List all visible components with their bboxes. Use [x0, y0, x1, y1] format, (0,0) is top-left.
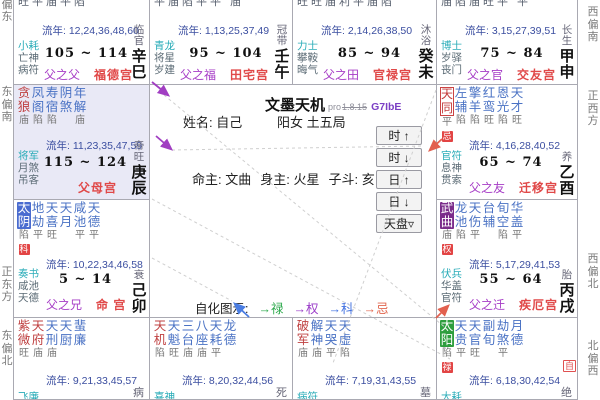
star-贪狼: 贪狼庙 [17, 87, 31, 126]
clipped-brightness-row: 旺旺庙利平庙陷 [297, 0, 395, 9]
god-病符: 病符 [297, 391, 318, 400]
star-寿宿: 寿宿陷 [45, 87, 59, 126]
stem-branch: 庚辰 [131, 164, 147, 196]
relation-label: 父之福 [180, 68, 216, 82]
star-天哭: 天哭平 [324, 320, 338, 359]
relation-label: 父之官 [467, 68, 503, 82]
self-hua-badge: 自 [563, 360, 576, 372]
day-up-button[interactable]: 日 ↑ [376, 170, 422, 189]
star-list: 天同平忌左辅陷擎羊陷红鸾旺恩光陷天才旺 [440, 87, 524, 142]
liunian-years: 流年: 10,22,34,46,58 [46, 257, 143, 272]
compass-sidebar-right: 西偏南 正西方 西偏北 北偏西 [579, 0, 600, 400]
star-八座: 八座庙 [195, 320, 209, 359]
star-天耗: 天耗平 [209, 320, 223, 359]
star-台辅: 台辅 [482, 202, 496, 255]
sihua-badge-禄: 禄 [442, 362, 453, 373]
sihua-badge-忌: 忌 [442, 131, 453, 142]
palace-name-row: 父之迁疾厄宫 [469, 296, 558, 313]
liunian-years: 流年: 12,24,36,48,60 [42, 23, 139, 38]
liunian-years: 流年: 5,17,29,41,53 [469, 257, 560, 272]
palace-cell-yin[interactable]: 紫微旺天府庙天刑庙天厨蜚廉 流年: 9,21,33,45,57 飞廉 病 [13, 318, 150, 400]
compass-label: 东偏南 [1, 86, 13, 124]
star-天虚: 天虚陷 [338, 320, 352, 359]
god-丧门: 丧门 [441, 64, 462, 76]
center-info-panel: 文墨天机pro1.8.15G7IbE 姓名: 自己 阳女 土五局 命主: 文曲身… [150, 85, 437, 318]
stem-branch: 壬午 [274, 48, 290, 80]
star-天喜: 天喜旺 [45, 202, 59, 255]
year-gods: 飞廉 [18, 391, 39, 400]
legend-item-→权: →权 [294, 302, 319, 316]
palace-name: 父母宫 [78, 181, 117, 195]
star-破军: 破军庙 [296, 320, 310, 359]
day-down-button[interactable]: 日 ↓ [376, 192, 422, 211]
star-天德: 天德平 [87, 202, 101, 255]
stem-branch: 辛巳 [131, 48, 147, 80]
palace-name: 疾厄宫 [519, 298, 558, 312]
god-晦气: 晦气 [297, 64, 318, 76]
legend-item-→科: →科 [329, 302, 354, 316]
palace-name-row: 父之父福德宫 [44, 66, 133, 83]
star-龙池: 龙池陷 [454, 202, 468, 255]
palace-name: 迁移宫 [519, 181, 558, 195]
longevity-stage: 病 [133, 384, 144, 400]
zidou: 子斗: 亥 [328, 172, 374, 187]
stem-branch-block: 衰己卯 [131, 270, 147, 314]
self-hua-legend: 自化图示:→禄→权→科→忌 [195, 298, 389, 317]
clipped-brightness-row: 旺平庙平陷 [18, 0, 88, 9]
liunian-years: 流年: 2,14,26,38,50 [321, 23, 412, 38]
star-天贵: 天贵平 [454, 320, 468, 373]
relation-label: 父之父 [44, 68, 80, 82]
star-list: 贪狼庙凤阁陷寿宿陷阴煞年解庙 [17, 87, 87, 126]
star-天魁: 天魁旺 [167, 320, 181, 359]
palace-cell-hai[interactable]: 太阳陷禄天贵平天官旺副旬劫煞平月德 流年: 6,18,30,42,54 大耗 自… [437, 318, 578, 400]
star-list: 天机陷天魁旺三台庙八座庙天耗平龙德 [153, 320, 237, 359]
palace-cell-xu-ji-e[interactable]: 武曲庙权龙池陷天伤平台辅旬空陷华盖平 流年: 5,17,29,41,53 伏兵华… [437, 200, 578, 318]
star-副旬: 副旬 [482, 320, 496, 373]
liunian-years: 流年: 11,23,35,47,59 [46, 138, 142, 153]
star-凤阁: 凤阁陷 [31, 87, 45, 126]
star-list: 武曲庙权龙池陷天伤平台辅旬空陷华盖平 [440, 202, 524, 255]
palace-cell-si-fude[interactable]: 旺平庙平陷 流年: 12,24,36,48,60 小耗亡神病符 105 ~ 11… [13, 0, 150, 85]
liunian-years: 流年: 7,19,31,43,55 [325, 373, 416, 388]
decade-range: 85 ~ 94 [313, 46, 426, 61]
liunian-years: 流年: 6,18,30,42,54 [469, 373, 560, 388]
god-大耗: 大耗 [441, 391, 462, 400]
longevity-stage: 冠带 [275, 25, 289, 47]
palace-name-row: 父之福田宅宫 [180, 66, 269, 83]
palace-cell-zi[interactable]: 破军庙解神庙天哭平天虚陷 流年: 7,19,31,43,55 病符 墓 [293, 318, 437, 400]
star-天同: 天同平忌 [440, 87, 454, 142]
star-左辅: 左辅陷 [454, 87, 468, 142]
star-地劫: 地劫平 [31, 202, 45, 255]
god-飞廉: 飞廉 [18, 391, 39, 400]
relation-label: 父之友 [469, 181, 505, 195]
star-天机: 天机陷 [153, 320, 167, 359]
decade-range: 105 ~ 114 [34, 46, 139, 61]
star-龙德: 龙德 [223, 320, 237, 359]
star-月德: 月德 [510, 320, 524, 373]
sihua-badge-权: 权 [442, 244, 453, 255]
star-旬空: 旬空陷 [496, 202, 510, 255]
palace-name: 交友宫 [517, 68, 556, 82]
palace-name-row: 父之兄命 宫 [46, 296, 126, 313]
app-code: G7IbE [371, 101, 401, 113]
decade-range: 55 ~ 64 [457, 272, 565, 287]
stem-branch: 癸未 [418, 48, 434, 80]
legend-item-→禄: →禄 [258, 302, 283, 316]
decade-range: 95 ~ 104 [170, 46, 282, 61]
palace-name-row: 父之友迁移宫 [469, 179, 558, 196]
compass-label: 西偏南 [587, 6, 599, 44]
liunian-years: 流年: 4,16,28,40,52 [469, 138, 560, 153]
star-擎羊: 擎羊陷 [468, 87, 482, 142]
stem-branch-block: 胎丙戌 [559, 270, 575, 314]
longevity-stage: 绝 [561, 384, 572, 400]
star-武曲: 武曲庙权 [440, 202, 454, 255]
god-喜神: 喜神 [154, 391, 175, 400]
star-天刑: 天刑庙 [45, 320, 59, 359]
liunian-years: 流年: 9,21,33,45,57 [46, 373, 137, 388]
star-三台: 三台庙 [181, 320, 195, 359]
star-天月: 天月 [59, 202, 73, 255]
longevity-stage: 沐浴 [419, 25, 433, 47]
star-恩光: 恩光陷 [496, 87, 510, 142]
palace-name: 命 宫 [96, 298, 126, 312]
hour-down-button[interactable]: 时 ↓ [376, 148, 422, 167]
legend-items: →禄→权→科→忌 [248, 302, 388, 316]
shen-master: 身主: 火星 [260, 172, 319, 187]
stem-branch: 乙酉 [559, 164, 575, 196]
god-吊客: 吊客 [18, 174, 39, 186]
longevity-stage: 长生 [560, 25, 574, 47]
stem-branch: 丙戌 [559, 282, 575, 314]
app-version: 1.8.15 [342, 102, 367, 112]
masters-row: 命主: 文曲身主: 火星子斗: 亥 [192, 169, 384, 188]
star-太阳: 太阳陷禄 [440, 320, 454, 373]
star-红鸾: 红鸾旺 [482, 87, 496, 142]
compass-label: 东偏北 [1, 330, 13, 368]
palace-cell-wei-guanlu[interactable]: 旺旺庙利平庙陷 流年: 2,14,26,38,50 力士攀鞍晦气 85 ~ 94… [293, 0, 437, 85]
palace-cell-you-qianyi[interactable]: 天同平忌左辅陷擎羊陷红鸾旺恩光陷天才旺 流年: 4,16,28,40,52 官符… [437, 85, 578, 200]
palace-cell-wu-tianzhai[interactable]: 平庙陷平平 庙 流年: 1,13,25,37,49 青龙将星岁建 95 ~ 10… [150, 0, 293, 85]
tianpan-select-button[interactable]: 天盘▿ [376, 214, 422, 233]
clipped-brightness-row: 庙陷庙旺平 平 [441, 0, 531, 9]
star-太阴: 太阴陷科 [17, 202, 31, 255]
star-天官: 天官旺 [468, 320, 482, 373]
liunian-years: 流年: 3,15,27,39,51 [465, 23, 556, 38]
sihua-badge-科: 科 [19, 244, 30, 255]
palace-cell-chou[interactable]: 天机陷天魁旺三台庙八座庙天耗平龙德 流年: 8,20,32,44,56 喜神 死 [150, 318, 293, 400]
stem-branch-block: 养乙酉 [559, 152, 575, 196]
compass-label: 南偏东 [1, 0, 13, 24]
stem-branch-block: 帝旺庚辰 [131, 141, 147, 196]
year-gods: 病符 [297, 391, 318, 400]
longevity-stage: 墓 [420, 384, 431, 400]
star-list: 紫微旺天府庙天刑庙天厨蜚廉 [17, 320, 87, 359]
decade-range: 5 ~ 14 [34, 272, 137, 287]
star-list: 太阴陷科地劫平天喜旺天月咸池平天德平 [17, 202, 101, 255]
decade-range: 115 ~ 124 [34, 155, 137, 170]
god-天德: 天德 [18, 292, 39, 304]
compass-label: 北偏西 [587, 340, 599, 378]
liunian-years: 流年: 8,20,32,44,56 [182, 373, 273, 388]
compass-label: 西偏北 [587, 253, 599, 291]
relation-label: 父之迁 [469, 298, 505, 312]
relation-label: 父之田 [323, 68, 359, 82]
star-蜚廉: 蜚廉 [73, 320, 87, 359]
palace-name-row: 父之官交友宫 [467, 66, 556, 83]
palace-cell-mao-ming[interactable]: 太阴陷科地劫平天喜旺天月咸池平天德平 流年: 10,22,34,46,58 奏书… [13, 200, 150, 318]
person-name: 姓名: 自己 [183, 112, 242, 131]
longevity-stage: 死 [276, 384, 287, 400]
longevity-stage: 养 [560, 152, 574, 163]
relation-label: 父之兄 [46, 298, 82, 312]
compass-label: 正东方 [1, 266, 13, 304]
decade-range: 65 ~ 74 [457, 155, 565, 170]
palace-name: 官禄宫 [373, 68, 412, 82]
decade-range: 75 ~ 84 [457, 46, 567, 61]
god-病符: 病符 [18, 64, 39, 76]
stem-branch: 己卯 [131, 282, 147, 314]
ziwei-chart-app: 南偏东 东偏南 正东方 东偏北 西偏南 正西方 西偏北 北偏西 旺平庙平陷 流年… [0, 0, 600, 400]
compass-sidebar-left: 南偏东 东偏南 正东方 东偏北 [0, 0, 13, 400]
stem-branch-block: 长生甲申 [559, 25, 575, 80]
star-咸池: 咸池平 [73, 202, 87, 255]
star-天才: 天才旺 [510, 87, 524, 142]
longevity-stage: 临官 [132, 25, 146, 47]
star-list: 太阳陷禄天贵平天官旺副旬劫煞平月德 [440, 320, 524, 373]
year-gods: 大耗 [441, 391, 462, 400]
liunian-years: 流年: 1,13,25,37,49 [178, 23, 269, 38]
god-官符: 官符 [441, 292, 462, 304]
palace-cell-chen-fumu[interactable]: 贪狼庙凤阁陷寿宿陷阴煞年解庙 流年: 11,23,35,47,59 将军月煞吊客… [13, 85, 150, 200]
stem-branch-block: 沐浴癸未 [418, 25, 434, 80]
god-岁建: 岁建 [154, 64, 175, 76]
star-list: 破军庙解神庙天哭平天虚陷 [296, 320, 352, 359]
legend-label: 自化图示: [195, 302, 248, 316]
longevity-stage: 胎 [560, 270, 574, 281]
star-天伤: 天伤平 [468, 202, 482, 255]
hour-up-button[interactable]: 时 ↑ [376, 126, 422, 145]
longevity-stage: 帝旺 [132, 141, 146, 163]
year-gods: 喜神 [154, 391, 175, 400]
clipped-brightness-row: 平庙陷平平 庙 [154, 0, 244, 9]
star-阴煞: 阴煞 [59, 87, 73, 126]
star-劫煞: 劫煞平 [496, 320, 510, 373]
palace-cell-shen-jiaoyou[interactable]: 庙陷庙旺平 平 流年: 3,15,27,39,51 博士岁驿丧门 75 ~ 84… [437, 0, 578, 85]
palace-name: 田宅宫 [230, 68, 269, 82]
star-华盖: 华盖平 [510, 202, 524, 255]
star-紫微: 紫微旺 [17, 320, 31, 359]
ming-master: 命主: 文曲 [192, 172, 251, 187]
gender-bureau: 阳女 土五局 [277, 112, 346, 131]
time-adjust-buttons: 时 ↑ 时 ↓ 日 ↑ 日 ↓ 天盘▿ [376, 126, 422, 236]
star-天府: 天府庙 [31, 320, 45, 359]
stem-branch-block: 临官辛巳 [131, 25, 147, 80]
star-解神: 解神庙 [310, 320, 324, 359]
compass-label: 正西方 [587, 90, 599, 128]
star-天厨: 天厨 [59, 320, 73, 359]
stem-branch-block: 冠带壬午 [274, 25, 290, 80]
stem-branch: 甲申 [559, 48, 575, 80]
palace-name-row: 父母宫 [78, 179, 117, 196]
legend-item-→忌: →忌 [364, 302, 389, 316]
star-年解: 年解庙 [73, 87, 87, 126]
palace-name: 福德宫 [94, 68, 133, 82]
app-edition: pro [328, 102, 341, 112]
god-贯索: 贯索 [441, 174, 462, 186]
palace-name-row: 父之田官禄宫 [323, 66, 412, 83]
longevity-stage: 衰 [132, 270, 146, 281]
